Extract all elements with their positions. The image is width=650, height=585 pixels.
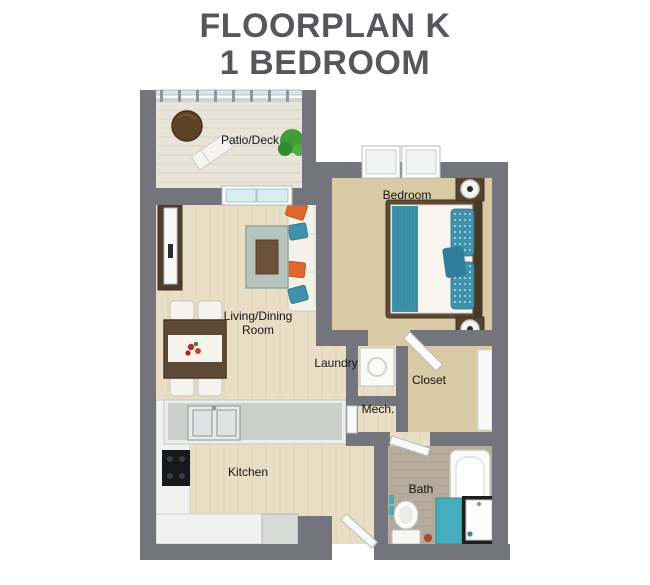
wall-left <box>140 90 156 560</box>
sliding-glass-door <box>222 186 292 205</box>
bottom-cabinet-run <box>156 514 264 544</box>
wall-patio-divider-left <box>140 188 222 205</box>
room-label-bath: Bath <box>409 483 434 497</box>
bed-blanket <box>392 206 418 312</box>
room-label-closet: Closet <box>412 374 446 388</box>
wall-living-bedroom <box>316 178 332 330</box>
wall-right <box>492 162 508 560</box>
entry-threshold <box>332 546 374 558</box>
closet-shelving <box>478 350 492 430</box>
patio-railing <box>156 90 302 102</box>
refrigerator <box>262 514 298 548</box>
wall-bottom-left <box>140 544 332 560</box>
room-label-laundry: Laundry <box>314 357 357 371</box>
wall-laundry-closet <box>396 346 408 432</box>
wall-bath-top-right <box>430 432 508 446</box>
wall-bottom-right <box>374 544 510 560</box>
washer <box>360 348 394 386</box>
bath-accent-item <box>424 534 432 542</box>
room-label-bedroom: Bedroom <box>383 189 432 203</box>
room-label-living-line1: Living/Dining <box>224 310 293 324</box>
wall-bedroom-bottom-left <box>316 330 368 346</box>
coffee-table-tray <box>256 240 278 274</box>
room-label-living-line2: Room <box>224 324 293 338</box>
coffee-table <box>246 226 288 288</box>
stove <box>162 450 190 486</box>
wall-patio-divider-right <box>292 188 316 205</box>
teal-vanity <box>436 498 462 544</box>
mech-door <box>347 406 357 433</box>
room-label-kitchen: Kitchen <box>228 466 268 480</box>
room-label-patio: Patio/Deck <box>221 134 279 148</box>
room-label-mech: Mech. <box>362 403 395 417</box>
accent-pillow <box>442 246 467 279</box>
tv-console <box>158 200 182 290</box>
wall-entry-stub <box>298 516 332 544</box>
wall-bedroom-bottom-right <box>410 330 508 346</box>
wall-bath-left <box>374 446 388 544</box>
wall-bath-top-left <box>346 432 390 446</box>
kitchen-sink <box>188 406 240 440</box>
bed <box>386 200 482 318</box>
wall-patio-right <box>302 90 316 190</box>
toilet <box>392 501 420 544</box>
sink-vanity <box>462 496 496 544</box>
headboard <box>474 200 482 318</box>
table-runner <box>168 335 222 362</box>
floorplan-image: FLOORPLAN K 1 BEDROOM <box>0 0 650 585</box>
room-label-living: Living/Dining Room <box>224 310 293 338</box>
floorplan-drawing <box>0 0 650 585</box>
